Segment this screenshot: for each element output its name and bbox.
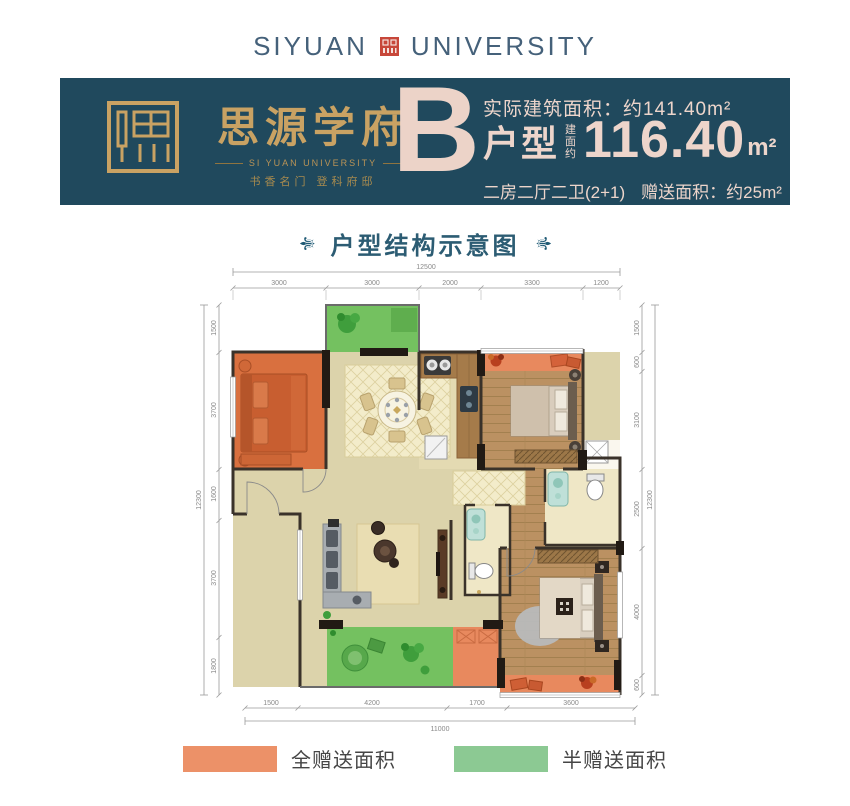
area-value: 116.40 bbox=[583, 118, 745, 162]
half-gift-swatch bbox=[454, 746, 548, 772]
banner: 思源学府 SI YUAN UNIVERSITY 书香名门 登科府邸 B 实际建筑… bbox=[60, 78, 790, 205]
closet-symbol bbox=[586, 441, 608, 463]
sink-symbol bbox=[460, 386, 478, 412]
unit-spec-block: 实际建筑面积：约141.40m² 户型 建面约 116.40 m² 二房二厅二卫… bbox=[483, 78, 783, 205]
shower-symbol bbox=[467, 509, 485, 540]
dim-label: 3000 bbox=[364, 280, 380, 287]
layout-line: 二房二厅二卫(2+1)赠送面积：约25m² bbox=[483, 178, 782, 203]
dim-label: 11000 bbox=[431, 726, 450, 733]
layout-desc: 二房二厅二卫(2+1) bbox=[483, 183, 625, 202]
brand-left-text: SIYUAN bbox=[253, 31, 368, 62]
dim-label: 2500 bbox=[634, 501, 641, 517]
dim-label: 3100 bbox=[634, 412, 641, 428]
fleur-de-lis-icon: ⚜ bbox=[530, 235, 555, 253]
built-area-line: 户型 建面约 116.40 m² bbox=[483, 118, 777, 162]
area-prefix: 建面约 bbox=[565, 124, 579, 160]
dim-label: 12300 bbox=[196, 490, 203, 510]
legend-item-half-gift: 半赠送面积 bbox=[454, 744, 667, 773]
gift-area-square bbox=[453, 627, 500, 687]
legend-item-full-gift: 全赠送面积 bbox=[183, 744, 396, 773]
dim-label: 3000 bbox=[271, 280, 287, 287]
seal-logo-icon bbox=[380, 37, 399, 56]
unit-letter: B bbox=[392, 66, 480, 193]
brand-header: SIYUAN UNIVERSITY bbox=[0, 30, 850, 62]
fleur-de-lis-icon: ⚜ bbox=[295, 235, 320, 253]
floor-plan-drawing: 12500 3000 3000 2000 3300 1200 1500 4200… bbox=[195, 262, 665, 740]
dim-label: 4000 bbox=[634, 604, 641, 620]
full-gift-swatch bbox=[183, 746, 277, 772]
dim-label: 1500 bbox=[634, 320, 641, 336]
legend: 全赠送面积 半赠送面积 bbox=[0, 744, 850, 773]
dim-label: 2000 bbox=[442, 280, 458, 287]
dim-label: 1200 bbox=[593, 280, 609, 287]
area-unit: m² bbox=[747, 134, 776, 162]
section-title: ⚜ 户型结构示意图 ⚜ bbox=[0, 226, 850, 261]
tv-cabinet-symbol bbox=[436, 530, 447, 598]
dim-label: 3300 bbox=[524, 280, 540, 287]
half-gift-label: 半赠送面积 bbox=[562, 744, 667, 773]
brand-right-text: UNIVERSITY bbox=[411, 31, 597, 62]
dim-label: 3700 bbox=[211, 570, 218, 586]
brand-seal-icon bbox=[106, 100, 180, 174]
wardrobe-symbol bbox=[538, 550, 598, 563]
project-subtitle-text: SI YUAN UNIVERSITY bbox=[249, 158, 377, 168]
full-gift-label: 全赠送面积 bbox=[291, 744, 396, 773]
section-title-text: 户型结构示意图 bbox=[331, 226, 520, 261]
gift-area-label: 赠送面积： bbox=[641, 183, 726, 202]
dim-label: 1800 bbox=[211, 658, 218, 674]
dim-label: 12300 bbox=[647, 490, 654, 510]
dim-label: 600 bbox=[634, 679, 641, 691]
shower-symbol bbox=[548, 472, 568, 506]
dim-label: 4200 bbox=[364, 700, 380, 707]
gift-area-value: 约25m² bbox=[726, 183, 782, 202]
dim-label: 3700 bbox=[211, 402, 218, 418]
dim-label: 600 bbox=[634, 356, 641, 368]
hall-mat bbox=[453, 471, 525, 505]
dim-label: 12500 bbox=[416, 264, 436, 271]
subtitle-dash-left bbox=[215, 163, 243, 164]
dim-label: 1500 bbox=[211, 320, 218, 336]
dim-label: 3600 bbox=[563, 700, 579, 707]
dim-label: 1700 bbox=[469, 700, 485, 707]
unit-type-label: 户型 bbox=[483, 126, 559, 162]
dim-label: 1600 bbox=[211, 486, 218, 502]
page-root: SIYUAN UNIVERSITY 思源学府 SI YUAN U bbox=[0, 0, 850, 806]
toilet-symbol bbox=[469, 563, 475, 579]
floor-plan: 12500 3000 3000 2000 3300 1200 1500 4200… bbox=[195, 262, 665, 740]
bed-symbol bbox=[239, 360, 307, 466]
dim-label: 1500 bbox=[263, 700, 279, 707]
wardrobe-symbol bbox=[515, 450, 577, 463]
